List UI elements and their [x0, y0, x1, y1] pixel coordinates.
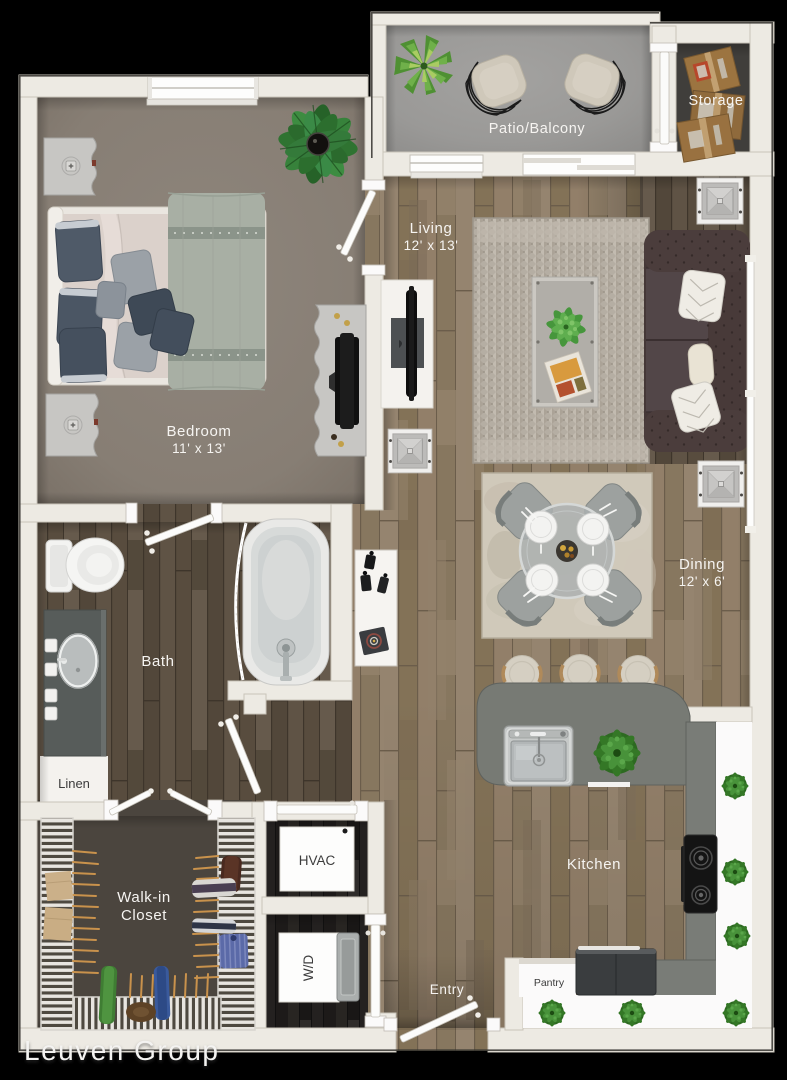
svg-text:Bath: Bath — [141, 653, 174, 670]
svg-text:Storage: Storage — [689, 93, 744, 109]
svg-text:12' x 13': 12' x 13' — [404, 238, 459, 253]
svg-text:Pantry: Pantry — [534, 977, 565, 989]
svg-text:Patio/Balcony: Patio/Balcony — [489, 121, 586, 137]
svg-text:Linen: Linen — [58, 776, 90, 791]
svg-text:Kitchen: Kitchen — [567, 856, 621, 873]
svg-text:Bedroom: Bedroom — [166, 423, 231, 440]
svg-text:Leuven Group: Leuven Group — [24, 1035, 219, 1066]
svg-text:Living: Living — [410, 220, 453, 237]
svg-text:HVAC: HVAC — [299, 853, 336, 868]
svg-text:Entry: Entry — [430, 982, 465, 997]
svg-text:Walk-in: Walk-in — [117, 889, 171, 906]
svg-text:W/D: W/D — [301, 955, 316, 981]
svg-text:12' x 6': 12' x 6' — [679, 574, 726, 589]
svg-text:Closet: Closet — [121, 907, 167, 924]
svg-text:Dining: Dining — [679, 556, 725, 573]
svg-text:11' x 13': 11' x 13' — [172, 441, 226, 456]
